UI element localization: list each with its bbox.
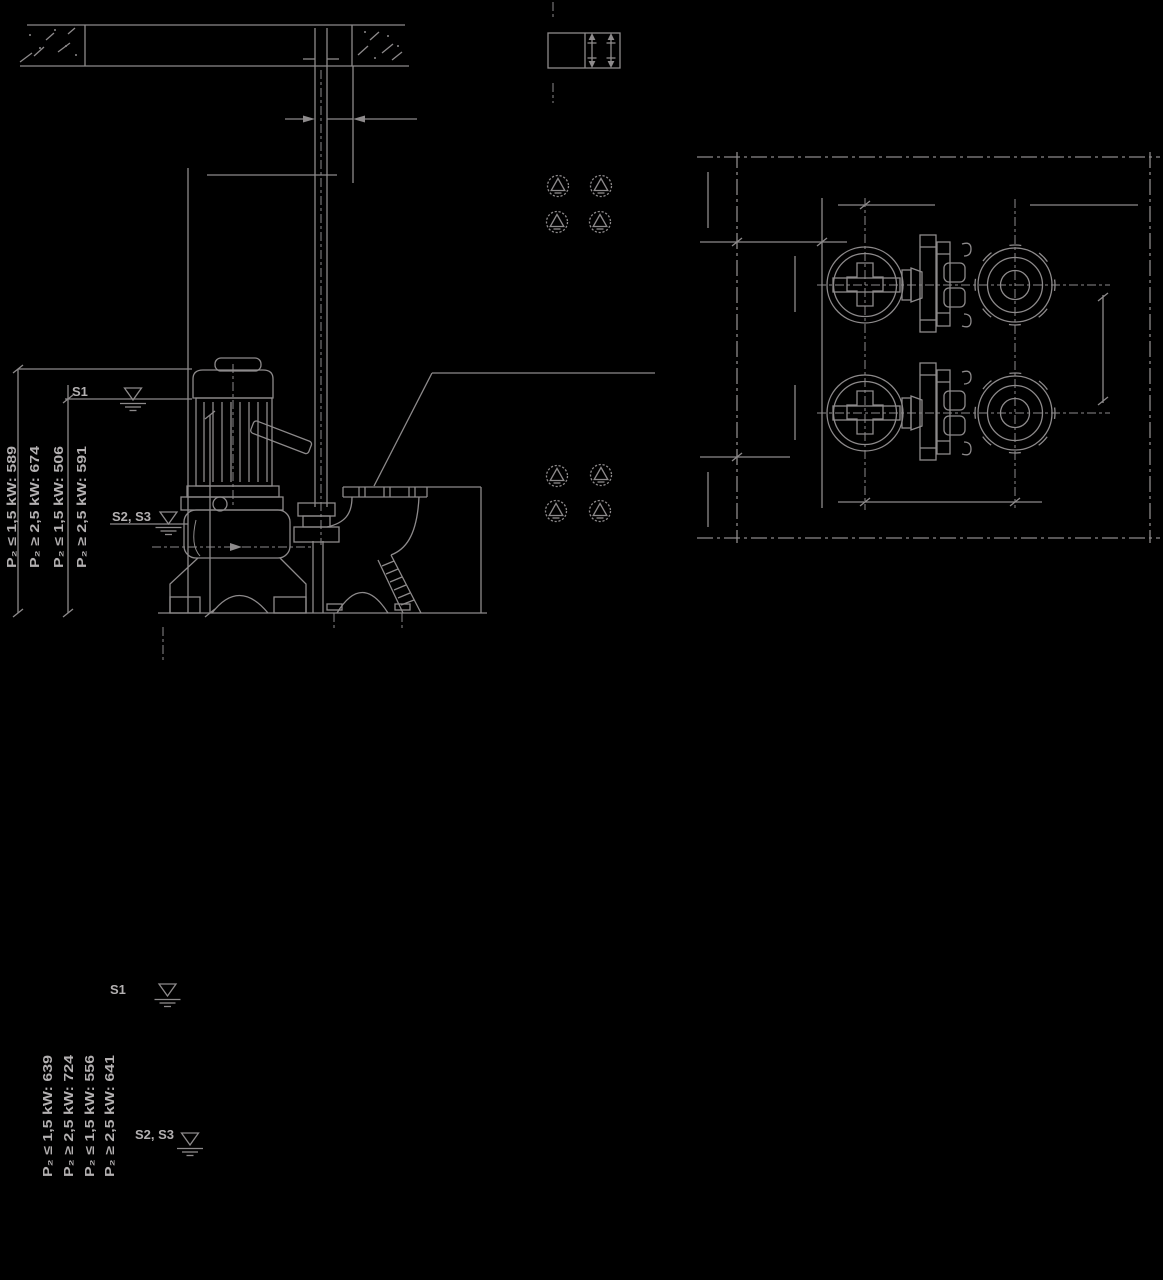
plan-centerlines (817, 198, 1110, 510)
anchor-bolt-symbols-lower (546, 465, 612, 522)
anchor-bolt-symbols-upper (547, 176, 612, 233)
duckfoot-elbow (313, 487, 481, 628)
ceiling-beam (20, 25, 409, 66)
pump-dimension-drawing: S1 S2, S3 P₂ ≤ 1,5 kW: 589 P₂ ≥ 2,5 kW: … (0, 0, 1163, 1280)
dim-label: P₂ ≤ 1,5 kW: 639 (40, 1055, 55, 1177)
hatch-right (358, 31, 402, 60)
dimension-lines (13, 365, 215, 617)
floor-view-labels: S1 S2, S3 P₂ ≤ 1,5 kW: 639 P₂ ≥ 2,5 kW: … (40, 982, 203, 1177)
plan-view (697, 152, 1160, 543)
submersible-pump (152, 358, 316, 613)
dim-label: P₂ ≤ 1,5 kW: 506 (51, 446, 66, 568)
dim-label: P₂ ≤ 1,5 kW: 556 (82, 1055, 97, 1177)
water-level-s1: S1 (65, 384, 192, 411)
dim-label: P₂ ≥ 2,5 kW: 591 (74, 446, 89, 568)
pump-unit-2 (827, 363, 1055, 460)
s2-s3-label: S2, S3 (135, 1127, 174, 1142)
pump-unit-1 (827, 235, 1055, 332)
floor-dim-labels: P₂ ≤ 1,5 kW: 639 P₂ ≥ 2,5 kW: 724 P₂ ≤ 1… (40, 1054, 117, 1177)
floor-water-level-s2-s3: S2, S3 (135, 1127, 203, 1156)
cable-gland (246, 404, 315, 471)
floor-water-level-s1: S1 (110, 982, 181, 1007)
guide-bracket-detail (548, 2, 620, 103)
dim-label: P₂ ≤ 1,5 kW: 589 (4, 446, 19, 568)
section-dim-labels: P₂ ≤ 1,5 kW: 589 P₂ ≥ 2,5 kW: 674 P₂ ≤ 1… (4, 445, 89, 568)
plan-dimensions (700, 172, 1138, 527)
guide-pipe (303, 28, 353, 545)
water-level-s2-s3: S2, S3 (110, 509, 188, 535)
s1-label: S1 (72, 384, 88, 399)
pit-outline (697, 152, 1160, 543)
hatch-left (20, 28, 77, 62)
section-view: S1 S2, S3 P₂ ≤ 1,5 kW: 589 P₂ ≥ 2,5 kW: … (4, 25, 655, 660)
s2-s3-label: S2, S3 (112, 509, 151, 524)
dim-label: P₂ ≥ 2,5 kW: 641 (102, 1055, 117, 1177)
s1-label: S1 (110, 982, 126, 997)
pipe-dimension (285, 116, 417, 123)
dim-label: P₂ ≥ 2,5 kW: 724 (61, 1054, 76, 1177)
guide-claw (294, 503, 339, 542)
dim-label: P₂ ≥ 2,5 kW: 674 (27, 445, 42, 568)
pit-lines (18, 168, 655, 660)
